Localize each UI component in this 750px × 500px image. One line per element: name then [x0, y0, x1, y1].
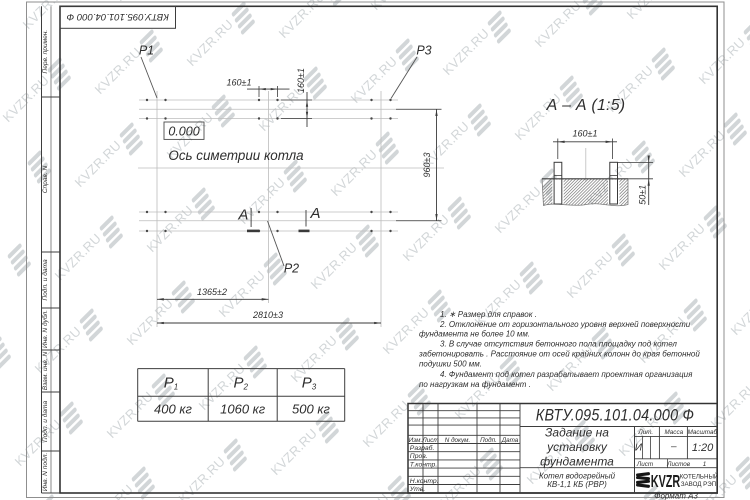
svg-text:КОТЕЛЬНЫЙ: КОТЕЛЬНЫЙ	[680, 473, 719, 481]
svg-text:Разраб.: Разраб.	[410, 444, 435, 452]
svg-text:Подп. и дата: Подп. и дата	[41, 401, 49, 443]
svg-text:Задание на: Задание на	[545, 426, 609, 440]
svg-text:А: А	[309, 205, 320, 222]
svg-text:KVZR.RU: KVZR.RU	[492, 184, 544, 236]
svg-text:Лист: Лист	[636, 461, 653, 468]
svg-text:КВТУ.095.101.04.000 Ф: КВТУ.095.101.04.000 Ф	[66, 11, 169, 22]
svg-text:0.000: 0.000	[168, 125, 199, 139]
svg-text:Инв. N подл.: Инв. N подл.	[41, 453, 49, 492]
svg-text:KVZR.RU: KVZR.RU	[184, 17, 236, 69]
svg-text:KVZR.RU: KVZR.RU	[532, 0, 584, 50]
svg-text:1: 1	[703, 461, 707, 468]
svg-text:Р3: Р3	[416, 44, 431, 58]
svg-text:И: И	[635, 443, 643, 454]
svg-text:KVZR: KVZR	[651, 473, 681, 492]
svg-text:160±1: 160±1	[296, 68, 306, 93]
svg-text:1365±2: 1365±2	[197, 287, 227, 297]
svg-text:KVZR.RU: KVZR.RU	[676, 128, 728, 180]
svg-text:N докум.: N докум.	[445, 436, 470, 444]
svg-text:КВТУ.095.101.04.000 Ф: КВТУ.095.101.04.000 Ф	[536, 407, 694, 425]
svg-text:Подп. и дата: Подп. и дата	[41, 259, 49, 301]
svg-text:подушки 500 мм.: подушки 500 мм.	[419, 358, 482, 368]
svg-text:KVZR.RU: KVZR.RU	[328, 147, 380, 199]
svg-text:ЗАВОД РЭП: ЗАВОД РЭП	[681, 481, 716, 488]
svg-text:1:20: 1:20	[692, 442, 714, 454]
svg-text:KVZR.RU: KVZR.RU	[728, 286, 750, 338]
svg-text:фундамента: фундамента	[540, 455, 614, 469]
svg-text:Пров.: Пров.	[410, 453, 428, 460]
svg-text:Р1: Р1	[164, 375, 178, 392]
svg-text:KVZR.RU: KVZR.RU	[360, 398, 412, 450]
svg-text:500 кг: 500 кг	[292, 402, 330, 417]
svg-text:KVZR.RU: KVZR.RU	[656, 221, 708, 273]
svg-text:160±1: 160±1	[573, 128, 598, 138]
svg-text:Листов: Листов	[666, 461, 691, 468]
svg-text:по нагрузкам на фундамент .: по нагрузкам на фундамент .	[419, 379, 531, 389]
svg-text:1. ∗ Размер для справок .: 1. ∗ Размер для справок .	[440, 309, 537, 319]
svg-text:забетонировать . Расстояние о: забетонировать . Расстояние от осей край…	[418, 348, 700, 358]
svg-text:KVZR.RU: KVZR.RU	[144, 203, 196, 255]
svg-text:установку: установку	[546, 440, 608, 454]
svg-text:Подп.: Подп.	[480, 436, 497, 444]
svg-text:Перв. примен.: Перв. примен.	[42, 30, 49, 74]
svg-text:Р1: Р1	[139, 44, 154, 58]
svg-text:KVZR.RU: KVZR.RU	[12, 417, 64, 469]
svg-text:Масса: Масса	[664, 429, 683, 436]
svg-text:KVZR.RU: KVZR.RU	[20, 0, 72, 32]
svg-text:Р2: Р2	[233, 375, 248, 392]
svg-text:Справ. N: Справ. N	[42, 165, 49, 193]
svg-text:KVZR.RU: KVZR.RU	[348, 54, 400, 106]
svg-text:KVZR.RU: KVZR.RU	[288, 333, 340, 385]
svg-text:50±1: 50±1	[637, 185, 647, 205]
svg-text:KVZR.RU: KVZR.RU	[124, 296, 176, 348]
svg-text:3. В случае отсутствия бетонн: 3. В случае отсутствия бетонного пола пл…	[440, 338, 677, 348]
svg-text:–: –	[670, 442, 677, 453]
svg-text:160±1: 160±1	[227, 78, 252, 88]
svg-text:2810±3: 2810±3	[252, 310, 283, 320]
svg-text:KVZR.RU: KVZR.RU	[564, 249, 616, 301]
svg-text:А – А (1:5): А – А (1:5)	[546, 97, 626, 114]
svg-text:Р3: Р3	[302, 375, 317, 392]
svg-text:Формат А3: Формат А3	[654, 492, 698, 500]
svg-text:КВ-1,1 КБ (РВР): КВ-1,1 КБ (РВР)	[547, 480, 607, 489]
svg-text:KVZR.RU: KVZR.RU	[72, 138, 124, 190]
svg-text:Утв.: Утв.	[409, 486, 426, 493]
svg-text:А: А	[237, 207, 248, 224]
svg-text:1060 кг: 1060 кг	[220, 402, 266, 417]
svg-text:Р2: Р2	[284, 262, 299, 276]
svg-text:Т.контр.: Т.контр.	[410, 461, 438, 468]
svg-text:960±3: 960±3	[422, 153, 432, 178]
svg-text:Масштаб: Масштаб	[688, 428, 718, 436]
svg-text:400 кг: 400 кг	[154, 402, 192, 417]
svg-text:Изм.: Изм.	[409, 437, 422, 444]
svg-text:KVZR.RU: KVZR.RU	[308, 240, 360, 292]
svg-text:KVZR.RU: KVZR.RU	[708, 379, 750, 431]
svg-text:KVZR.RU: KVZR.RU	[92, 45, 144, 97]
svg-text:фундамента не более 10 мм.: фундамента не более 10 мм.	[419, 328, 530, 338]
svg-text:Лит.: Лит.	[637, 429, 653, 436]
svg-text:KVZR.RU: KVZR.RU	[268, 426, 320, 478]
svg-text:KVZR.RU: KVZR.RU	[624, 0, 676, 22]
svg-text:Дата: Дата	[501, 437, 519, 444]
svg-text:Ось симетрии котла: Ось симетрии котла	[168, 148, 303, 163]
svg-text:KVZR.RU: KVZR.RU	[440, 26, 492, 78]
svg-text:Лист: Лист	[421, 437, 438, 444]
svg-text:Инв. N дубл.: Инв. N дубл.	[41, 310, 49, 348]
svg-text:Н.контр.: Н.контр.	[410, 478, 439, 485]
svg-text:4. Фундамент под котел разраб: 4. Фундамент под котел разрабатывает про…	[440, 369, 693, 379]
svg-text:KVZR.RU: KVZR.RU	[400, 212, 452, 264]
svg-text:Взам. инв. N: Взам. инв. N	[42, 352, 49, 391]
svg-text:KVZR.RU: KVZR.RU	[340, 491, 392, 500]
svg-text:KVZR.RU: KVZR.RU	[696, 35, 748, 87]
